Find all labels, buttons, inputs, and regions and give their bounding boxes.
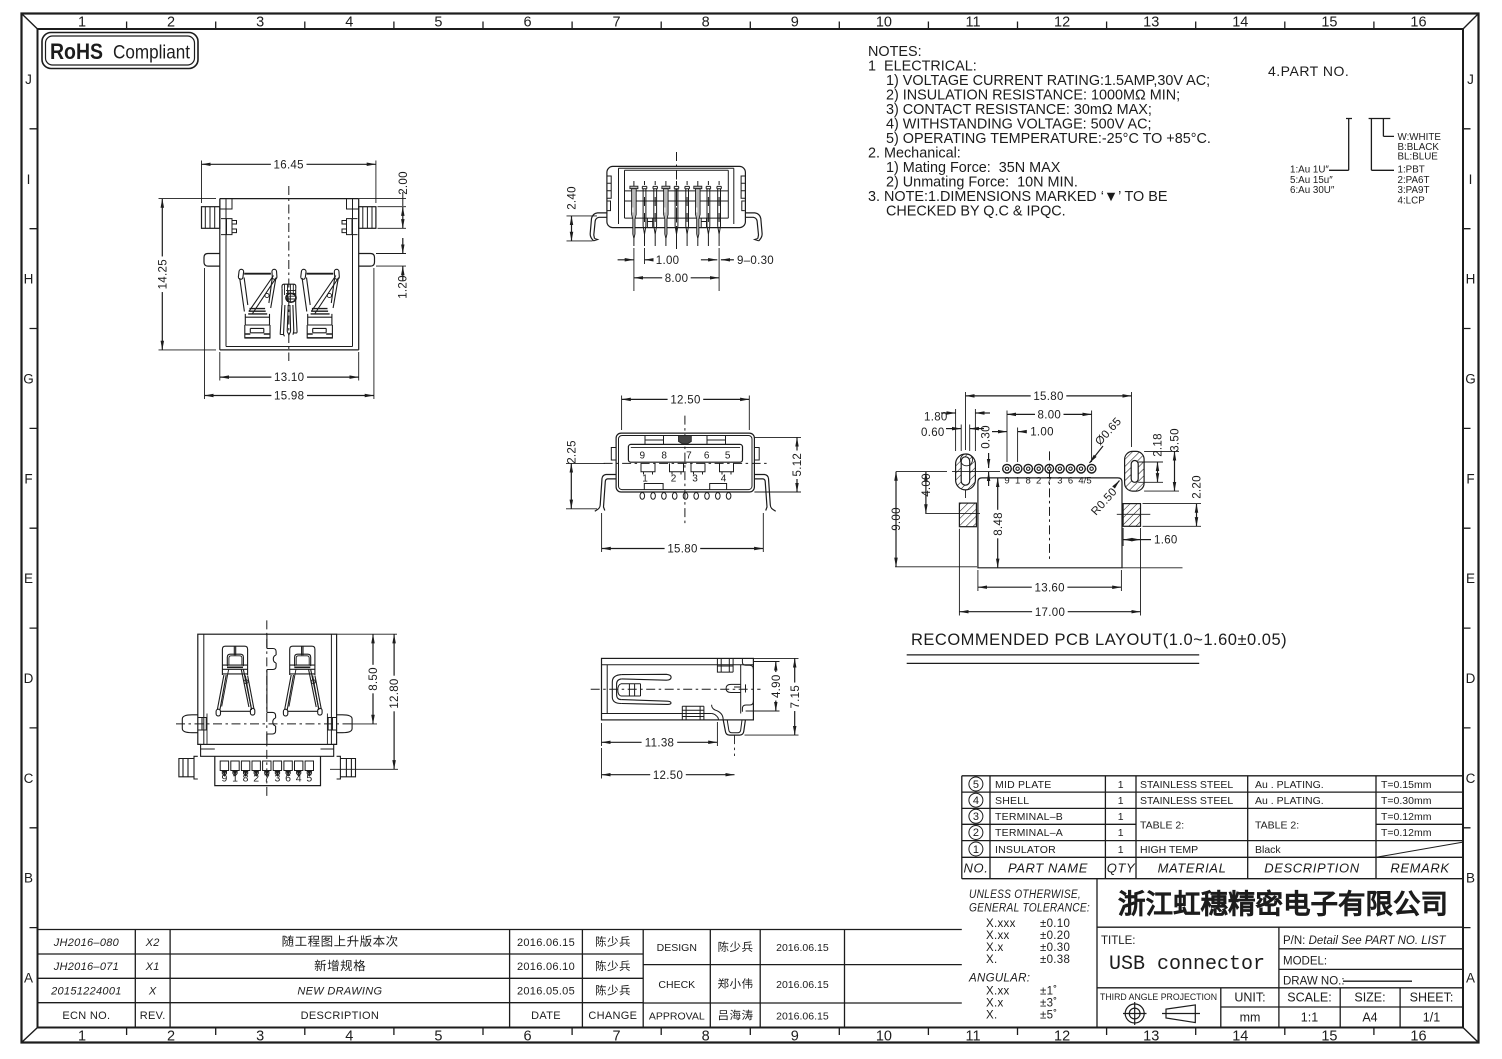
svg-text:4: 4 <box>296 773 302 785</box>
svg-text:0.30: 0.30 <box>981 425 993 449</box>
svg-text:SIZE:: SIZE: <box>1354 991 1385 1005</box>
svg-text:USB connector: USB connector <box>1109 953 1265 976</box>
svg-text:1: 1 <box>78 15 86 31</box>
svg-text:1.80: 1.80 <box>924 412 948 424</box>
svg-text:9.00: 9.00 <box>891 507 903 531</box>
svg-text:REMARK: REMARK <box>1390 861 1450 876</box>
svg-text:X.xx: X.xx <box>986 930 1010 942</box>
svg-text:G: G <box>23 372 34 387</box>
svg-text:1:1: 1:1 <box>1301 1011 1318 1025</box>
svg-text:±3˚: ±3˚ <box>1040 998 1057 1010</box>
svg-text:15: 15 <box>1321 15 1337 31</box>
svg-text:THIRD ANGLE PROJECTION: THIRD ANGLE PROJECTION <box>1100 992 1217 1002</box>
svg-text:7: 7 <box>1047 475 1052 486</box>
svg-text:1: 1 <box>1118 779 1124 791</box>
svg-text:1: 1 <box>1118 844 1124 856</box>
svg-text:9: 9 <box>221 773 227 785</box>
svg-text:14: 14 <box>1232 15 1248 31</box>
svg-text:8.00: 8.00 <box>665 273 689 285</box>
svg-text:13: 13 <box>1143 15 1159 31</box>
svg-text:2016.06.10: 2016.06.10 <box>517 961 575 973</box>
svg-text:CHECKED BY Q.C & IPQC.: CHECKED BY Q.C & IPQC. <box>886 204 1066 220</box>
svg-text:X.: X. <box>986 1010 997 1022</box>
svg-text:B: B <box>1466 871 1475 886</box>
svg-text:2.20: 2.20 <box>1192 475 1204 499</box>
svg-text:4:LCP: 4:LCP <box>1398 195 1426 206</box>
svg-text:NO.: NO. <box>964 861 989 876</box>
svg-text:11: 11 <box>965 1029 980 1045</box>
svg-text:15.98: 15.98 <box>274 391 304 403</box>
svg-text:T=0.15mm: T=0.15mm <box>1381 779 1432 791</box>
svg-text:5: 5 <box>306 773 312 785</box>
svg-text:TABLE 2:: TABLE 2: <box>1140 820 1184 832</box>
svg-text:2: 2 <box>167 1029 175 1045</box>
svg-text:9: 9 <box>1004 475 1009 486</box>
svg-text:5.12: 5.12 <box>792 453 804 477</box>
svg-text:RoHS: RoHS <box>50 39 103 64</box>
svg-text:A: A <box>24 971 33 986</box>
svg-text:SHEET:: SHEET: <box>1410 991 1454 1005</box>
svg-text:Black: Black <box>1255 844 1281 856</box>
svg-text:JH2016–071: JH2016–071 <box>53 961 119 973</box>
svg-text:±0.10: ±0.10 <box>1040 918 1070 930</box>
svg-text:UNLESS OTHERWISE,: UNLESS OTHERWISE, <box>969 889 1081 901</box>
svg-text:5: 5 <box>434 15 442 31</box>
svg-text:1.20: 1.20 <box>397 275 409 299</box>
svg-text:20151224001: 20151224001 <box>50 986 122 998</box>
svg-text:±5˚: ±5˚ <box>1040 1010 1057 1022</box>
svg-text:4: 4 <box>345 1029 353 1045</box>
svg-text:1.60: 1.60 <box>1154 535 1178 547</box>
svg-text:2016.06.15: 2016.06.15 <box>776 942 829 954</box>
svg-text:GENERAL TOLERANCE:: GENERAL TOLERANCE: <box>969 903 1090 915</box>
svg-text:SHELL: SHELL <box>995 795 1029 807</box>
svg-text:DESCRIPTION: DESCRIPTION <box>1264 861 1359 876</box>
svg-text:QTY: QTY <box>1107 861 1136 876</box>
svg-text:T=0.30mm: T=0.30mm <box>1381 795 1432 807</box>
svg-text:11: 11 <box>965 15 980 31</box>
svg-text:6: 6 <box>285 773 291 785</box>
svg-text:6: 6 <box>1068 475 1073 486</box>
svg-text:5: 5 <box>434 1029 442 1045</box>
svg-text:F: F <box>24 471 32 486</box>
svg-text:I: I <box>27 172 31 187</box>
svg-text:3: 3 <box>1057 475 1062 486</box>
svg-text:STAINLESS STEEL: STAINLESS STEEL <box>1140 779 1233 791</box>
svg-text:8: 8 <box>702 15 710 31</box>
svg-text:STAINLESS STEEL: STAINLESS STEEL <box>1140 795 1233 807</box>
svg-text:8: 8 <box>702 1029 710 1045</box>
svg-text:T=0.12mm: T=0.12mm <box>1381 811 1432 823</box>
svg-text:mm: mm <box>1240 1011 1261 1025</box>
svg-text:1/1: 1/1 <box>1423 1011 1440 1025</box>
svg-text:2016.06.15: 2016.06.15 <box>517 937 575 949</box>
svg-text:TERMINAL–A: TERMINAL–A <box>995 827 1063 839</box>
svg-text:Compliant: Compliant <box>113 42 191 64</box>
svg-text:3: 3 <box>973 811 979 823</box>
svg-text:13.60: 13.60 <box>1035 582 1065 594</box>
svg-text:D: D <box>1466 671 1476 686</box>
svg-text:CHECK: CHECK <box>658 979 695 991</box>
svg-text:REV.: REV. <box>140 1010 166 1022</box>
svg-text:3: 3 <box>256 15 264 31</box>
svg-text:Au . PLATING.: Au . PLATING. <box>1255 779 1324 791</box>
svg-text:X.x: X.x <box>986 998 1004 1010</box>
svg-text:2016.05.05: 2016.05.05 <box>517 986 575 998</box>
svg-text:E: E <box>24 571 33 586</box>
svg-text:9: 9 <box>791 1029 799 1045</box>
svg-text:G: G <box>1465 372 1476 387</box>
svg-text:3: 3 <box>274 773 280 785</box>
svg-text:C: C <box>24 771 34 786</box>
svg-text:H: H <box>1466 272 1476 287</box>
svg-text:INSULATOR: INSULATOR <box>995 844 1056 856</box>
svg-text:1: 1 <box>1118 827 1124 839</box>
svg-text:MATERIAL: MATERIAL <box>1158 861 1227 876</box>
svg-text:±0.20: ±0.20 <box>1040 930 1070 942</box>
svg-text:3.50: 3.50 <box>1170 428 1182 452</box>
svg-text:2.40: 2.40 <box>567 186 579 210</box>
svg-text:2.18: 2.18 <box>1153 433 1165 457</box>
svg-text:6: 6 <box>523 1029 531 1045</box>
svg-text:2.00: 2.00 <box>398 171 410 195</box>
svg-text:DRAW NO.:: DRAW NO.: <box>1283 976 1345 988</box>
svg-text:2: 2 <box>973 827 979 839</box>
svg-text:ANGULAR:: ANGULAR: <box>968 973 1030 985</box>
svg-text:3: 3 <box>692 474 698 485</box>
svg-text:TITLE:: TITLE: <box>1101 935 1136 947</box>
svg-text:8: 8 <box>1026 475 1031 486</box>
svg-text:P/N: Detail See PART NO. LIST: P/N: Detail See PART NO. LIST <box>1283 935 1447 947</box>
svg-text:2016.06.15: 2016.06.15 <box>776 1010 829 1022</box>
svg-text:F: F <box>1466 471 1474 486</box>
svg-text:NEW DRAWING: NEW DRAWING <box>297 986 382 998</box>
svg-text:SCALE:: SCALE: <box>1287 991 1331 1005</box>
svg-text:4: 4 <box>721 474 727 485</box>
svg-text:8.48: 8.48 <box>993 512 1005 536</box>
svg-text:X.: X. <box>986 954 997 966</box>
svg-text:1: 1 <box>78 1029 86 1045</box>
svg-text:8.50: 8.50 <box>368 667 380 691</box>
svg-text:15.80: 15.80 <box>667 544 697 556</box>
svg-text:Ø0.65: Ø0.65 <box>1093 416 1124 448</box>
svg-text:J: J <box>1467 72 1474 87</box>
svg-text:14.25: 14.25 <box>157 259 169 289</box>
svg-text:UNIT:: UNIT: <box>1234 991 1265 1005</box>
svg-text:9: 9 <box>791 15 799 31</box>
svg-text:RECOMMENDED PCB LAYOUT(1.0~1.6: RECOMMENDED PCB LAYOUT(1.0~1.60±0.05) <box>911 631 1287 649</box>
svg-text:9–0.30: 9–0.30 <box>737 255 774 267</box>
svg-text:12: 12 <box>1054 15 1070 31</box>
svg-text:8: 8 <box>243 773 249 785</box>
svg-text:J: J <box>25 72 32 87</box>
svg-text:JH2016–080: JH2016–080 <box>53 937 120 949</box>
svg-text:CHANGE: CHANGE <box>588 1010 637 1022</box>
svg-text:DESIGN: DESIGN <box>657 942 697 954</box>
svg-text:4: 4 <box>345 15 353 31</box>
svg-text:7: 7 <box>686 450 692 461</box>
svg-text:X: X <box>148 986 157 998</box>
svg-text:Au . PLATING.: Au . PLATING. <box>1255 795 1324 807</box>
svg-text:1: 1 <box>1118 811 1124 823</box>
svg-text:4: 4 <box>973 795 979 807</box>
svg-text:2.25: 2.25 <box>566 440 578 464</box>
svg-text:X.x: X.x <box>986 942 1004 954</box>
svg-text:2: 2 <box>253 773 259 785</box>
svg-text:A4: A4 <box>1362 1011 1377 1025</box>
svg-text:4.PART NO.: 4.PART NO. <box>1268 63 1349 79</box>
svg-text:10: 10 <box>876 15 892 31</box>
svg-text:8.00: 8.00 <box>1038 410 1062 422</box>
svg-text:3: 3 <box>256 1029 264 1045</box>
svg-text:±0.30: ±0.30 <box>1040 942 1070 954</box>
svg-text:16.45: 16.45 <box>274 159 304 171</box>
svg-text:±1˚: ±1˚ <box>1040 986 1057 998</box>
svg-text:15.80: 15.80 <box>1033 391 1063 403</box>
svg-text:1: 1 <box>232 773 238 785</box>
svg-text:6: 6 <box>523 15 531 31</box>
svg-text:1: 1 <box>973 844 979 856</box>
svg-text:DESCRIPTION: DESCRIPTION <box>301 1010 379 1022</box>
svg-text:±0.38: ±0.38 <box>1040 954 1070 966</box>
svg-text:TERMINAL–B: TERMINAL–B <box>995 811 1063 823</box>
svg-text:B: B <box>24 871 33 886</box>
svg-text:12.50: 12.50 <box>670 395 700 407</box>
svg-text:TABLE 2:: TABLE 2: <box>1255 820 1299 832</box>
svg-text:1: 1 <box>642 474 648 485</box>
svg-text:9: 9 <box>640 450 646 461</box>
svg-text:6:Au 30U″: 6:Au 30U″ <box>1290 185 1335 196</box>
svg-text:X1: X1 <box>145 961 160 973</box>
svg-text:BL:BLUE: BL:BLUE <box>1398 152 1439 163</box>
svg-text:ECN NO.: ECN NO. <box>62 1010 110 1022</box>
svg-text:1: 1 <box>1015 475 1020 486</box>
svg-text:16: 16 <box>1410 1029 1426 1045</box>
svg-text:2: 2 <box>167 15 175 31</box>
svg-text:H: H <box>24 272 34 287</box>
svg-text:8: 8 <box>661 450 667 461</box>
svg-text:MID PLATE: MID PLATE <box>995 779 1051 791</box>
svg-text:X.xxx: X.xxx <box>986 918 1016 930</box>
svg-text:PART NAME: PART NAME <box>1008 861 1088 876</box>
svg-text:4/5: 4/5 <box>1078 475 1091 486</box>
svg-text:HIGH TEMP: HIGH TEMP <box>1140 844 1198 856</box>
svg-text:0.60: 0.60 <box>921 427 945 439</box>
svg-text:2: 2 <box>671 474 677 485</box>
svg-text:E: E <box>1466 571 1475 586</box>
svg-text:11.38: 11.38 <box>645 737 674 749</box>
svg-text:16: 16 <box>1410 15 1426 31</box>
svg-text:X.xx: X.xx <box>986 986 1010 998</box>
svg-text:13: 13 <box>1143 1029 1159 1045</box>
svg-text:R0.50: R0.50 <box>1089 486 1119 518</box>
svg-text:A: A <box>1466 971 1475 986</box>
svg-text:4.00: 4.00 <box>921 473 933 497</box>
svg-text:4.90: 4.90 <box>771 674 783 698</box>
svg-text:6: 6 <box>704 450 710 461</box>
svg-text:APPROVAL: APPROVAL <box>649 1010 705 1022</box>
svg-text:12.80: 12.80 <box>389 678 401 708</box>
svg-text:2: 2 <box>1036 475 1041 486</box>
svg-text:10: 10 <box>876 1029 892 1045</box>
svg-text:I: I <box>1469 172 1473 187</box>
svg-text:DATE: DATE <box>531 1010 561 1022</box>
svg-text:C: C <box>1466 771 1476 786</box>
svg-text:1.00: 1.00 <box>656 255 680 267</box>
svg-text:14: 14 <box>1232 1029 1248 1045</box>
svg-text:5: 5 <box>973 779 979 791</box>
svg-text:12: 12 <box>1054 1029 1070 1045</box>
svg-text:7: 7 <box>613 15 621 31</box>
svg-text:MODEL:: MODEL: <box>1283 956 1327 968</box>
svg-text:12.50: 12.50 <box>653 770 683 782</box>
svg-text:T=0.12mm: T=0.12mm <box>1381 827 1432 839</box>
svg-text:1.00: 1.00 <box>1030 426 1054 438</box>
svg-text:1: 1 <box>1118 795 1124 807</box>
svg-text:D: D <box>24 671 34 686</box>
svg-text:5: 5 <box>725 450 731 461</box>
svg-text:13.10: 13.10 <box>274 372 304 384</box>
svg-text:2016.06.15: 2016.06.15 <box>776 979 829 991</box>
svg-text:15: 15 <box>1321 1029 1337 1045</box>
svg-text:7: 7 <box>264 773 270 785</box>
svg-text:17.00: 17.00 <box>1035 607 1065 619</box>
svg-text:X2: X2 <box>145 937 160 949</box>
svg-text:7: 7 <box>613 1029 621 1045</box>
svg-text:7.15: 7.15 <box>790 685 802 709</box>
